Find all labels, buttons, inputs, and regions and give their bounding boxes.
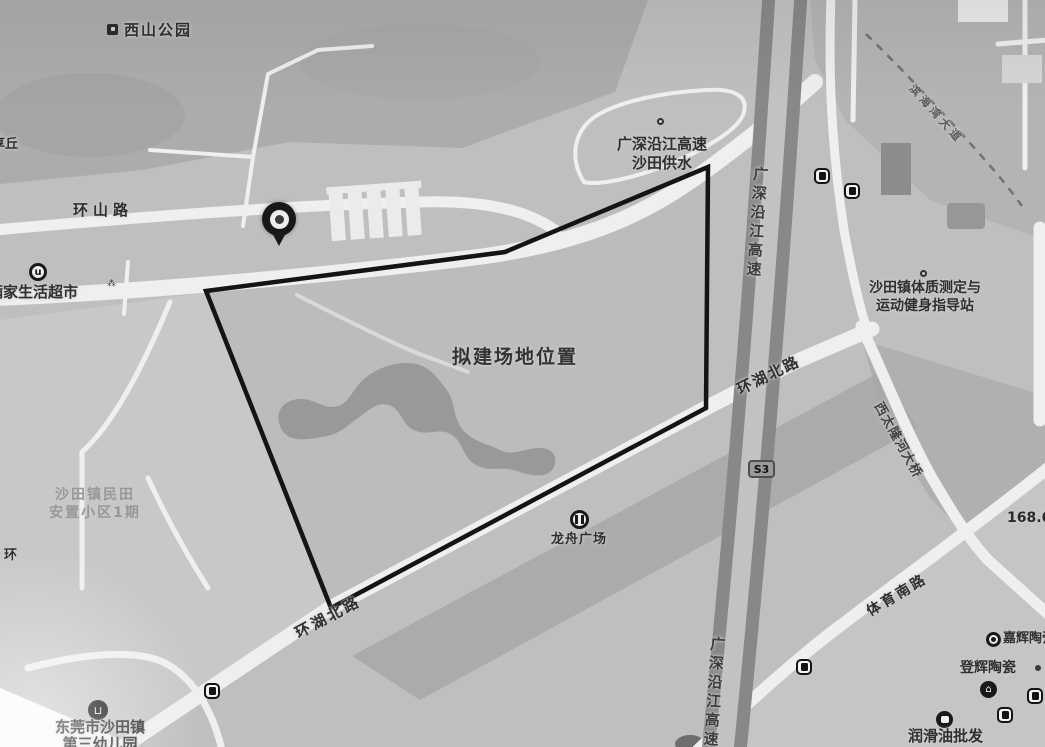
supermarket-label: 满家生活超市 [0, 283, 78, 302]
bus-stop-icon [997, 707, 1013, 723]
plaza-label: 龙舟广场 [551, 532, 607, 548]
map-figure: 西山公园 享丘 环山路 u 满家生活超市 ⁂ 广深沿江高速 沙田供水 拟建场地位… [0, 0, 1045, 747]
fitness-station-label: 沙田镇体质测定与 运动健身指导站 [855, 280, 995, 315]
lube-label: 润滑油批发 [908, 727, 983, 746]
bus-stop-icon [204, 683, 220, 699]
bus-stop-icon [796, 659, 812, 675]
huanshan-road-label: 环山路 [73, 201, 133, 220]
tiny-poi-mark: ⁂ [107, 279, 117, 289]
park-trees [0, 73, 185, 157]
kindergarten-label: 东莞市沙田镇 第三幼儿园 [44, 719, 156, 747]
water-supply-dot-icon [657, 118, 664, 125]
bus-stop-icon [814, 168, 830, 184]
denghui-label: 登辉陶瓷 [960, 660, 1016, 678]
building-block [1002, 55, 1042, 83]
park-icon [107, 24, 118, 35]
kindergarten-icon: ⊔ [88, 700, 108, 720]
poi-dot [1035, 665, 1041, 671]
park-label: 西山公园 [124, 21, 192, 40]
jiahui-label: 嘉辉陶瓷 [1003, 631, 1045, 647]
building-block [958, 0, 1008, 22]
distance-marker: 168.6米 [1007, 510, 1045, 528]
jiahui-icon [986, 632, 1001, 647]
map-canvas [0, 0, 1045, 747]
plaza-icon [570, 510, 589, 529]
location-pin-icon [259, 202, 299, 246]
park-trees [300, 24, 540, 100]
lube-icon [936, 711, 953, 728]
bus-stop-icon [844, 183, 860, 199]
building-block [881, 143, 911, 195]
resettlement-label: 沙田镇民田 安置小区1期 [25, 487, 165, 522]
huan-partial-label: 环 [4, 548, 17, 564]
site-label: 拟建场地位置 [452, 346, 578, 370]
bus-stop-icon [1027, 688, 1043, 704]
s3-highway-badge: S3 [748, 460, 775, 478]
water-supply-label: 广深沿江高速 沙田供水 [607, 135, 717, 173]
supermarket-icon: u [29, 263, 47, 281]
building-block [947, 203, 985, 229]
building-row [326, 181, 425, 241]
denghui-icon: ⌂ [980, 681, 997, 698]
hamlet-label: 享丘 [0, 137, 18, 153]
fitness-dot-icon [920, 270, 927, 277]
